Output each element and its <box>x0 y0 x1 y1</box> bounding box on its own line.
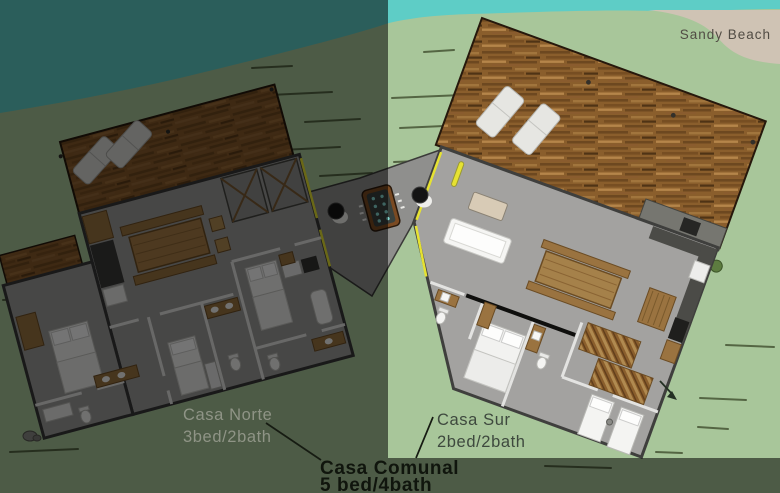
site-plan-canvas: Sandy Beach Casa Norte 3bed/2bath Casa S… <box>0 0 780 493</box>
casa-comunal-specs: 5 bed/4bath <box>320 475 432 493</box>
casa-norte-label: Casa Norte <box>183 406 272 424</box>
casa-sur-specs: 2bed/2bath <box>437 433 526 451</box>
sandy-beach-label: Sandy Beach <box>680 27 771 42</box>
casa-norte-specs: 3bed/2bath <box>183 428 272 446</box>
casa-sur-label: Casa Sur <box>437 411 511 429</box>
site-plan-rendering: Sandy Beach Casa Norte 3bed/2bath Casa S… <box>0 0 780 493</box>
